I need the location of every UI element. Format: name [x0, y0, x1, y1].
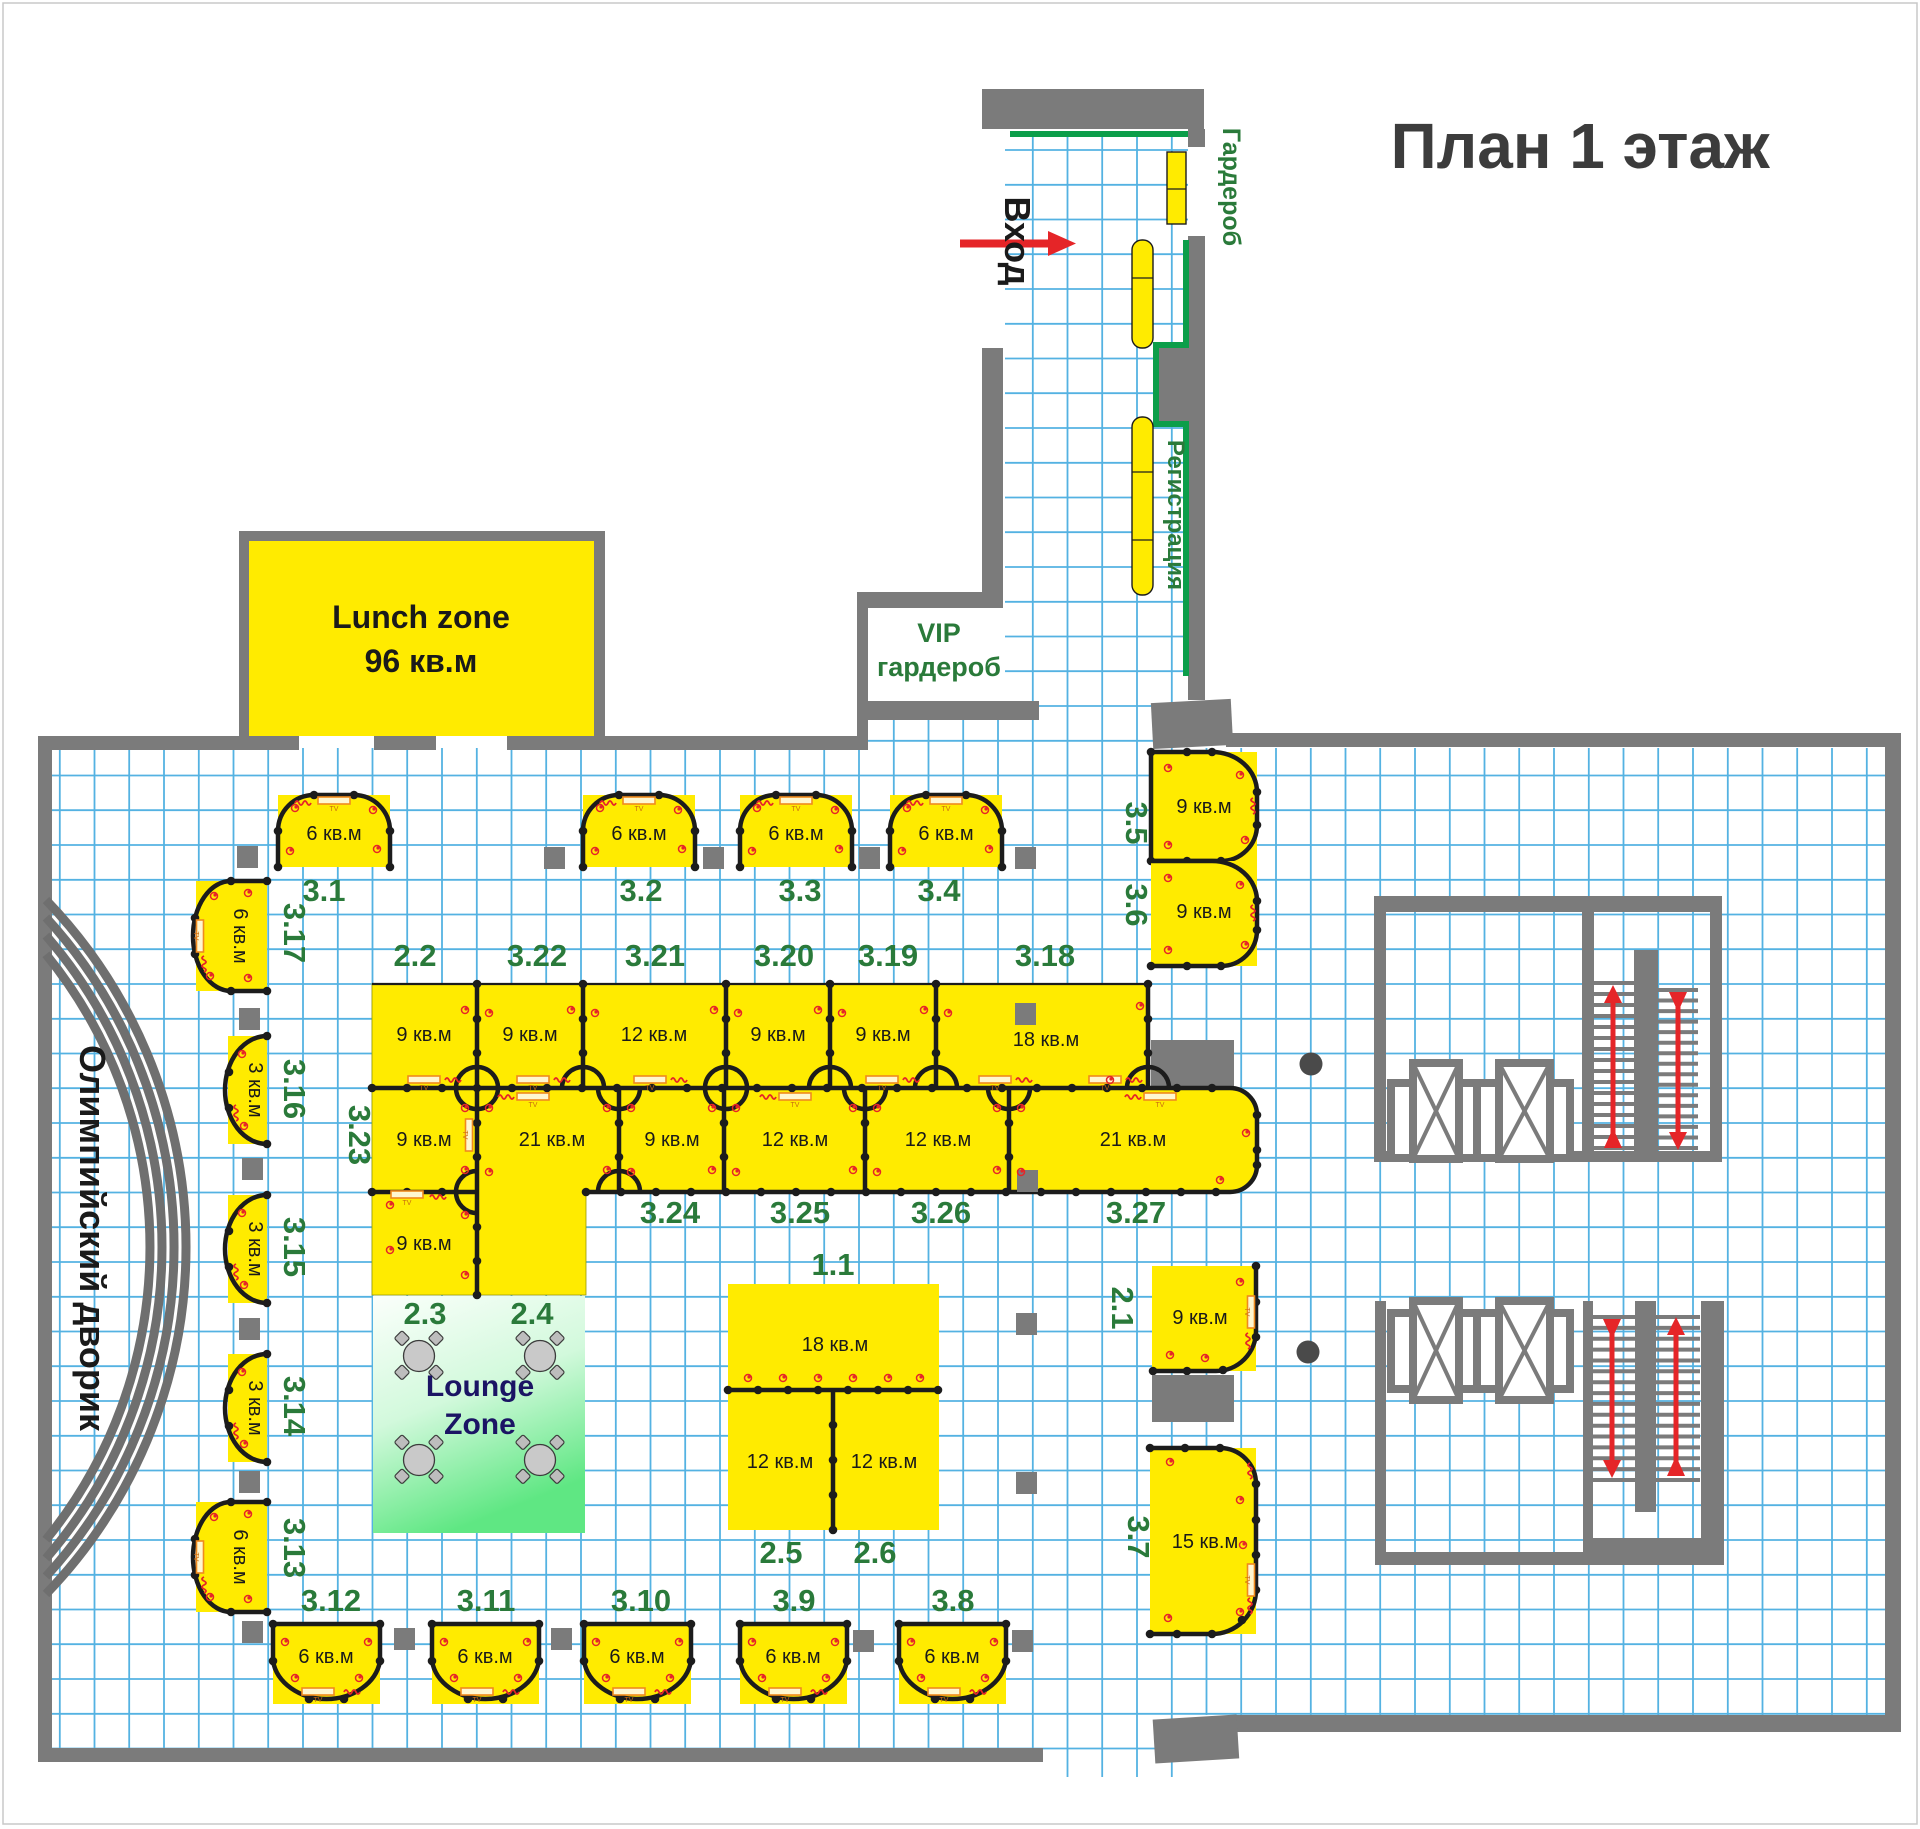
- svg-text:TV: TV: [529, 1085, 538, 1092]
- svg-text:Zone: Zone: [444, 1408, 516, 1441]
- svg-text:3 кв.м: 3 кв.м: [244, 1221, 266, 1276]
- svg-text:3.8: 3.8: [931, 1583, 974, 1618]
- svg-text:TV: TV: [942, 806, 951, 813]
- svg-text:6 кв.м: 6 кв.м: [611, 823, 666, 845]
- svg-text:9 кв.м: 9 кв.м: [855, 1024, 910, 1046]
- svg-text:3.17: 3.17: [277, 903, 312, 963]
- svg-text:TV: TV: [781, 1697, 790, 1704]
- svg-text:3.10: 3.10: [611, 1583, 671, 1618]
- svg-text:2.5: 2.5: [759, 1535, 802, 1570]
- svg-text:TV: TV: [529, 1102, 538, 1109]
- svg-text:6 кв.м: 6 кв.м: [768, 823, 823, 845]
- svg-text:TV: TV: [192, 932, 199, 941]
- svg-text:TV: TV: [635, 806, 644, 813]
- svg-text:12 кв.м: 12 кв.м: [905, 1129, 971, 1151]
- svg-text:3.12: 3.12: [301, 1583, 361, 1618]
- svg-text:2.6: 2.6: [853, 1535, 896, 1570]
- svg-text:TV: TV: [461, 1131, 468, 1140]
- svg-text:3.24: 3.24: [640, 1195, 701, 1230]
- svg-text:TV: TV: [1243, 1576, 1250, 1585]
- svg-text:2.2: 2.2: [393, 938, 436, 973]
- svg-text:6 кв.м: 6 кв.м: [298, 1646, 353, 1668]
- svg-text:2.1: 2.1: [1105, 1286, 1140, 1329]
- svg-text:3.6: 3.6: [1119, 883, 1154, 926]
- svg-text:3.20: 3.20: [754, 938, 814, 973]
- svg-text:9 кв.м: 9 кв.м: [644, 1129, 699, 1151]
- svg-text:6 кв.м: 6 кв.м: [924, 1646, 979, 1668]
- svg-text:12 кв.м: 12 кв.м: [851, 1451, 917, 1473]
- svg-text:TV: TV: [991, 1085, 1000, 1092]
- svg-text:21 кв.м: 21 кв.м: [519, 1129, 585, 1151]
- svg-text:3.7: 3.7: [1121, 1515, 1156, 1558]
- svg-text:TV: TV: [1101, 1085, 1110, 1092]
- svg-text:6 кв.м: 6 кв.м: [457, 1646, 512, 1668]
- svg-text:Вход: Вход: [997, 196, 1038, 285]
- svg-text:TV: TV: [473, 1697, 482, 1704]
- svg-text:3.11: 3.11: [457, 1583, 516, 1618]
- svg-text:Гардероб: Гардероб: [1217, 128, 1245, 246]
- svg-text:3 кв.м: 3 кв.м: [244, 1380, 266, 1435]
- svg-text:9 кв.м: 9 кв.м: [750, 1024, 805, 1046]
- svg-text:15 кв.м: 15 кв.м: [1172, 1531, 1238, 1553]
- svg-text:3.15: 3.15: [277, 1217, 312, 1277]
- svg-text:TV: TV: [403, 1200, 412, 1207]
- svg-text:9 кв.м: 9 кв.м: [1172, 1307, 1227, 1329]
- svg-text:3.16: 3.16: [277, 1059, 312, 1119]
- svg-text:6 кв.м: 6 кв.м: [229, 908, 251, 963]
- svg-text:Lounge: Lounge: [426, 1370, 534, 1403]
- svg-text:TV: TV: [940, 1697, 949, 1704]
- svg-text:3.23: 3.23: [342, 1105, 377, 1165]
- svg-text:12 кв.м: 12 кв.м: [621, 1024, 687, 1046]
- svg-text:9 кв.м: 9 кв.м: [1176, 796, 1231, 818]
- svg-text:9 кв.м: 9 кв.м: [396, 1129, 451, 1151]
- svg-text:9 кв.м: 9 кв.м: [396, 1024, 451, 1046]
- svg-text:TV: TV: [314, 1697, 323, 1704]
- svg-text:3.5: 3.5: [1119, 801, 1154, 844]
- svg-text:3.9: 3.9: [772, 1583, 815, 1618]
- svg-text:3.13: 3.13: [277, 1518, 312, 1578]
- svg-text:18 кв.м: 18 кв.м: [802, 1334, 868, 1356]
- svg-text:1.1: 1.1: [811, 1247, 854, 1282]
- svg-text:2.4: 2.4: [510, 1296, 554, 1331]
- svg-text:6 кв.м: 6 кв.м: [765, 1646, 820, 1668]
- svg-text:3.14: 3.14: [277, 1376, 312, 1437]
- svg-text:VIP: VIP: [917, 618, 961, 648]
- svg-text:18 кв.м: 18 кв.м: [1013, 1029, 1079, 1051]
- svg-text:TV: TV: [330, 806, 339, 813]
- svg-text:3.25: 3.25: [770, 1195, 830, 1230]
- svg-text:96 кв.м: 96 кв.м: [365, 643, 478, 679]
- svg-text:21 кв.м: 21 кв.м: [1100, 1129, 1166, 1151]
- svg-text:6 кв.м: 6 кв.м: [229, 1529, 251, 1584]
- svg-text:3.2: 3.2: [619, 873, 662, 908]
- svg-text:План 1 этаж: План 1 этаж: [1391, 110, 1771, 182]
- svg-text:3.22: 3.22: [507, 938, 567, 973]
- svg-text:TV: TV: [791, 1102, 800, 1109]
- svg-text:3.4: 3.4: [917, 873, 961, 908]
- svg-text:TV: TV: [878, 1085, 887, 1092]
- svg-text:3.27: 3.27: [1106, 1195, 1166, 1230]
- svg-text:3.3: 3.3: [778, 873, 821, 908]
- svg-text:9 кв.м: 9 кв.м: [502, 1024, 557, 1046]
- svg-text:3.18: 3.18: [1015, 938, 1075, 973]
- svg-text:3.21: 3.21: [625, 938, 685, 973]
- svg-text:9 кв.м: 9 кв.м: [1176, 901, 1231, 923]
- svg-text:12 кв.м: 12 кв.м: [747, 1451, 813, 1473]
- svg-text:TV: TV: [1243, 1308, 1250, 1317]
- svg-text:6 кв.м: 6 кв.м: [306, 823, 361, 845]
- svg-text:3.26: 3.26: [911, 1195, 971, 1230]
- svg-text:TV: TV: [792, 806, 801, 813]
- svg-text:TV: TV: [192, 1553, 199, 1562]
- svg-text:3.19: 3.19: [858, 938, 918, 973]
- svg-text:2.3: 2.3: [403, 1296, 446, 1331]
- svg-text:TV: TV: [625, 1697, 634, 1704]
- svg-text:3 кв.м: 3 кв.м: [244, 1062, 266, 1117]
- svg-text:гардероб: гардероб: [877, 652, 1001, 682]
- svg-text:TV: TV: [1156, 1102, 1165, 1109]
- svg-text:Регистрация: Регистрация: [1162, 440, 1189, 590]
- svg-text:6 кв.м: 6 кв.м: [609, 1646, 664, 1668]
- svg-text:Lunch zone: Lunch zone: [332, 599, 510, 635]
- svg-text:Олимпийский дворик: Олимпийский дворик: [72, 1045, 113, 1432]
- svg-text:9 кв.м: 9 кв.м: [396, 1233, 451, 1255]
- svg-text:TV: TV: [420, 1085, 429, 1092]
- svg-text:TV: TV: [646, 1085, 655, 1092]
- svg-text:6 кв.м: 6 кв.м: [918, 823, 973, 845]
- svg-text:12 кв.м: 12 кв.м: [762, 1129, 828, 1151]
